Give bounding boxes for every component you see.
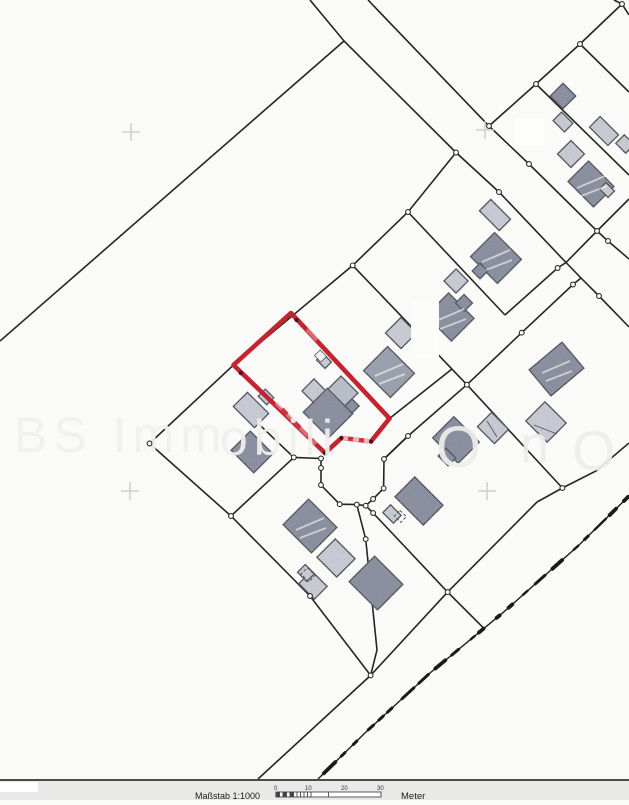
- svg-text:O: O: [436, 415, 481, 480]
- svg-text:30: 30: [377, 786, 384, 792]
- svg-text:Meter: Meter: [401, 791, 425, 800]
- svg-text:Maßstab 1:1000: Maßstab 1:1000: [195, 791, 260, 800]
- svg-text:n: n: [520, 416, 549, 474]
- svg-text:BS Imm: BS Imm: [14, 407, 228, 463]
- svg-text:20: 20: [341, 786, 348, 792]
- svg-text:10: 10: [305, 786, 312, 792]
- svg-text:O: O: [572, 419, 616, 482]
